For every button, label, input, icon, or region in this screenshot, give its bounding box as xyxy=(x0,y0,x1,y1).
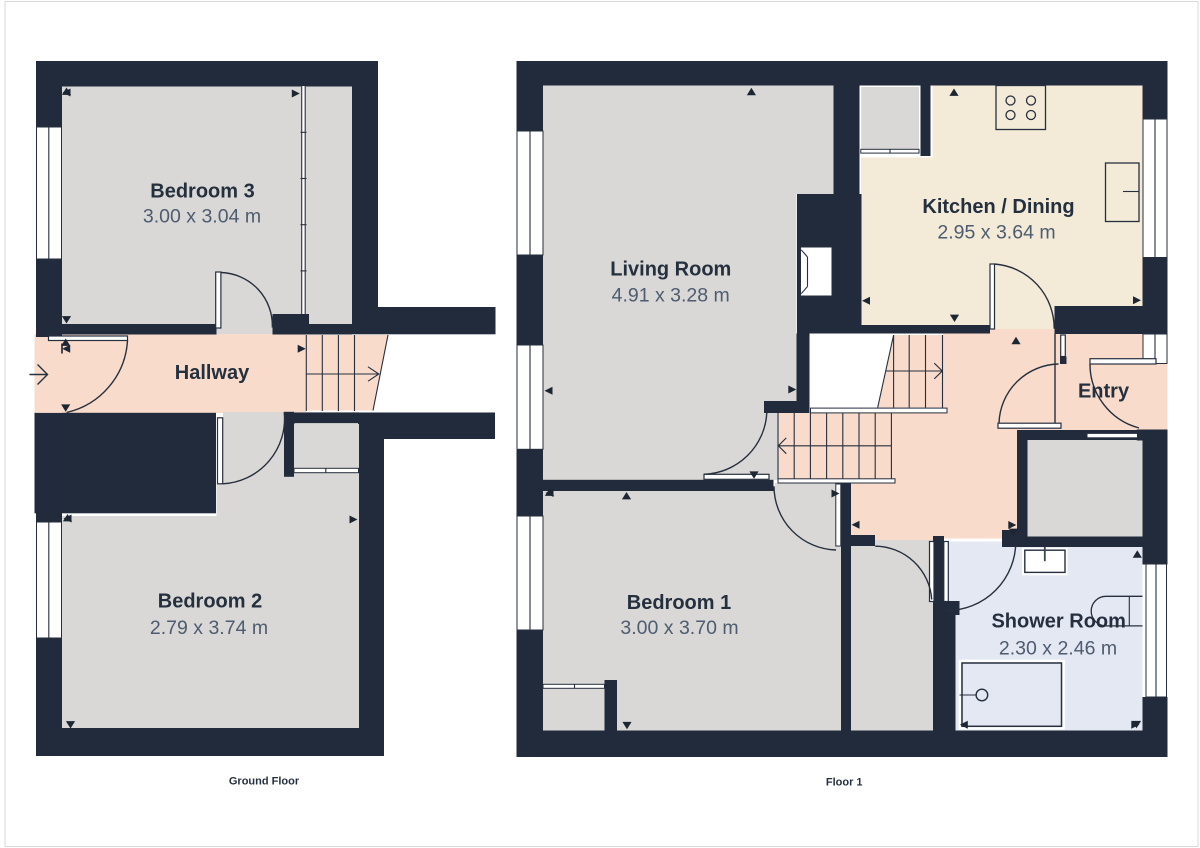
svg-text:2.79 x 3.74 m: 2.79 x 3.74 m xyxy=(150,617,268,639)
svg-text:Bedroom 2: Bedroom 2 xyxy=(158,591,262,613)
svg-text:4.91 x 3.28 m: 4.91 x 3.28 m xyxy=(612,285,730,307)
svg-text:3.00 x 3.70 m: 3.00 x 3.70 m xyxy=(620,617,738,639)
svg-text:Hallway: Hallway xyxy=(175,362,250,384)
svg-text:Shower Room: Shower Room xyxy=(991,611,1125,633)
svg-text:3.00 x 3.04 m: 3.00 x 3.04 m xyxy=(143,205,261,227)
svg-text:Bedroom 1: Bedroom 1 xyxy=(627,592,731,614)
svg-text:2.95 x 3.64 m: 2.95 x 3.64 m xyxy=(937,222,1055,244)
svg-text:Kitchen / Dining: Kitchen / Dining xyxy=(922,196,1074,218)
svg-text:2.30 x 2.46 m: 2.30 x 2.46 m xyxy=(999,638,1117,660)
svg-text:Entry: Entry xyxy=(1078,381,1130,403)
svg-text:Bedroom 3: Bedroom 3 xyxy=(150,181,254,203)
svg-text:Living Room: Living Room xyxy=(610,259,731,281)
svg-text:Ground Floor: Ground Floor xyxy=(229,776,300,788)
svg-text:Floor 1: Floor 1 xyxy=(826,777,863,789)
